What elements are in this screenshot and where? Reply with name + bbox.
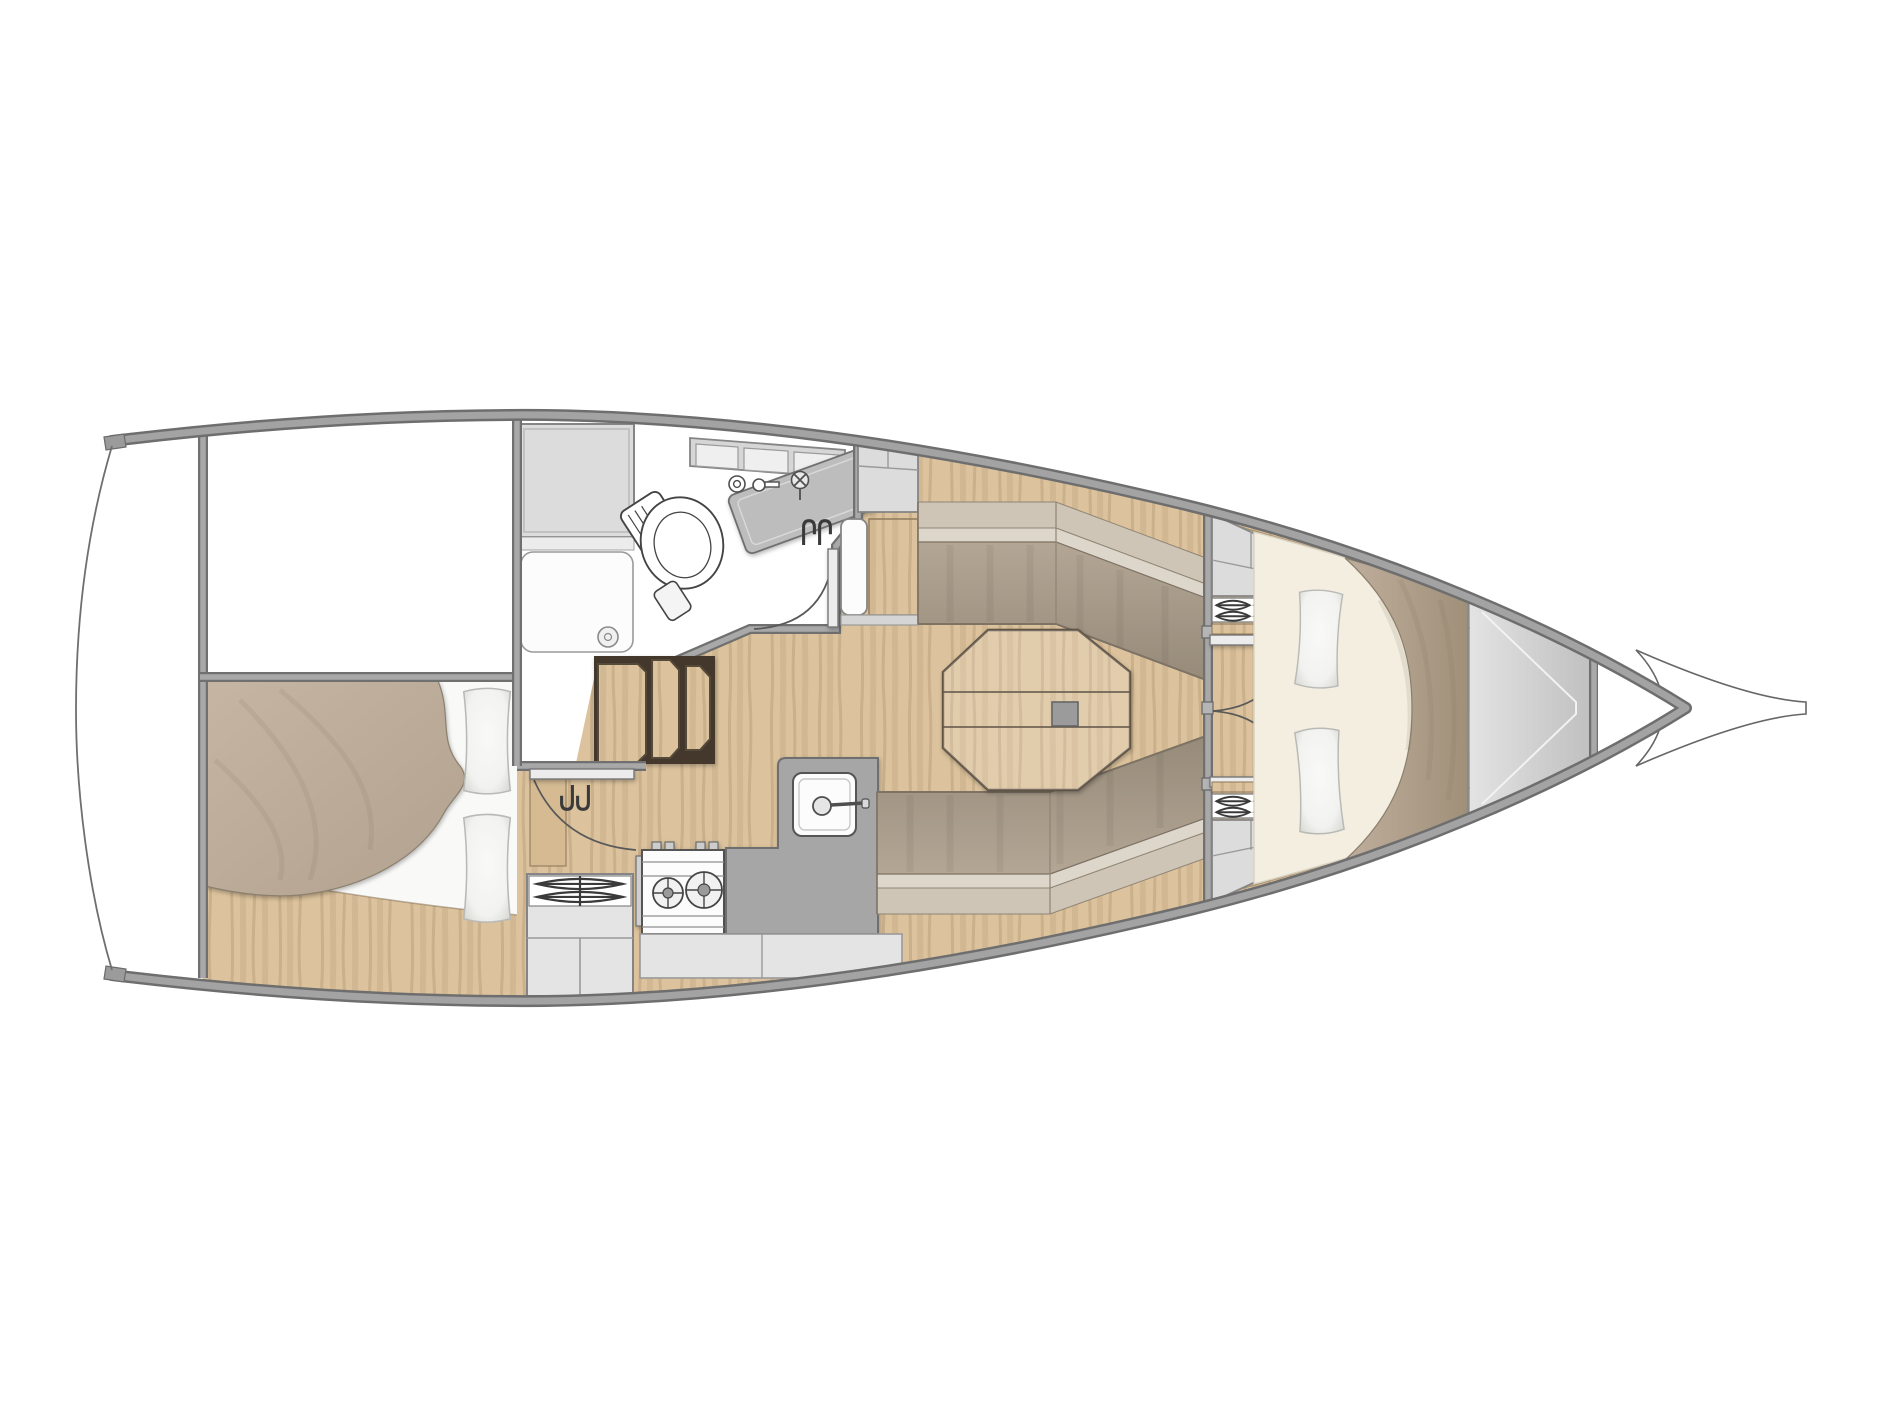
stove-burner-small xyxy=(653,878,683,908)
forward-cabin xyxy=(1212,514,1718,902)
stern-rail-cap-top xyxy=(104,434,126,450)
galley-vent-locker xyxy=(527,874,633,996)
aft-cabin xyxy=(205,681,517,1011)
saloon-table xyxy=(943,630,1130,790)
aft-pillow-1 xyxy=(464,688,511,793)
stove-burner-large xyxy=(686,872,722,908)
galley-stove xyxy=(636,842,730,934)
transom-outline xyxy=(76,446,112,970)
transom-area xyxy=(60,400,203,1020)
aft-pillow-2 xyxy=(464,814,511,922)
floor-plan-stage xyxy=(0,0,1900,1425)
v-berth-pillow-2 xyxy=(1295,727,1345,835)
interior xyxy=(60,400,1720,1020)
galley-wood-locker xyxy=(869,519,918,615)
refrigerator-door xyxy=(841,519,867,615)
head-upper-cabinet xyxy=(519,424,634,537)
stern-rail-cap-bottom xyxy=(104,966,126,982)
v-berth-pillow-1 xyxy=(1295,589,1343,689)
shower-drain xyxy=(598,627,618,647)
cockpit-well xyxy=(203,410,517,676)
companionway-steps xyxy=(594,656,715,764)
locker-ledge xyxy=(841,615,918,625)
yacht-floor-plan xyxy=(0,0,1900,1425)
head-cabinet-ledge xyxy=(519,537,634,550)
table-hatch-square xyxy=(1052,702,1078,726)
